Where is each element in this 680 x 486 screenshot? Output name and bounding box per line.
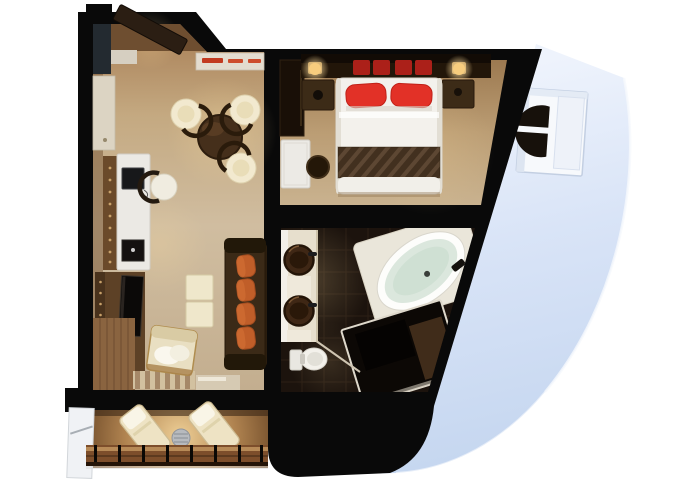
vanity-table: [281, 140, 310, 188]
toilet: [290, 348, 327, 370]
red-pillow-right: [390, 83, 432, 108]
lamp-glow: [309, 63, 321, 75]
red-pillow-left: [345, 83, 387, 109]
vanity-counter: [281, 230, 318, 342]
faucet: [308, 252, 317, 256]
closet: [93, 24, 111, 74]
stool: [307, 156, 329, 178]
cabinet-knob: [103, 138, 107, 142]
ottoman-2: [186, 302, 213, 327]
balcony: [67, 400, 268, 479]
armchair: [146, 325, 198, 376]
bed-runner: [338, 147, 440, 178]
red-item: [248, 59, 261, 63]
wood-floor: [93, 318, 135, 390]
wood-railing: [86, 445, 268, 469]
nightstand-item: [454, 88, 462, 96]
sofa: [224, 238, 267, 370]
ottoman-1: [186, 275, 213, 300]
red-item: [228, 59, 243, 63]
closet-shelf: [111, 50, 137, 64]
sheet-fold: [339, 112, 439, 118]
bedroom: [280, 54, 507, 215]
floor-plan-image: [0, 0, 680, 486]
desk: [103, 154, 150, 270]
bed-foot: [338, 177, 440, 194]
faucet: [308, 303, 317, 307]
double-bed: [336, 78, 442, 197]
threshold-glow: [198, 377, 226, 381]
nightstand-item: [313, 90, 323, 100]
living-room: [93, 4, 277, 390]
device-button: [131, 248, 135, 252]
red-item: [202, 58, 223, 63]
side-table: [172, 429, 190, 447]
lamp-glow: [453, 63, 465, 75]
